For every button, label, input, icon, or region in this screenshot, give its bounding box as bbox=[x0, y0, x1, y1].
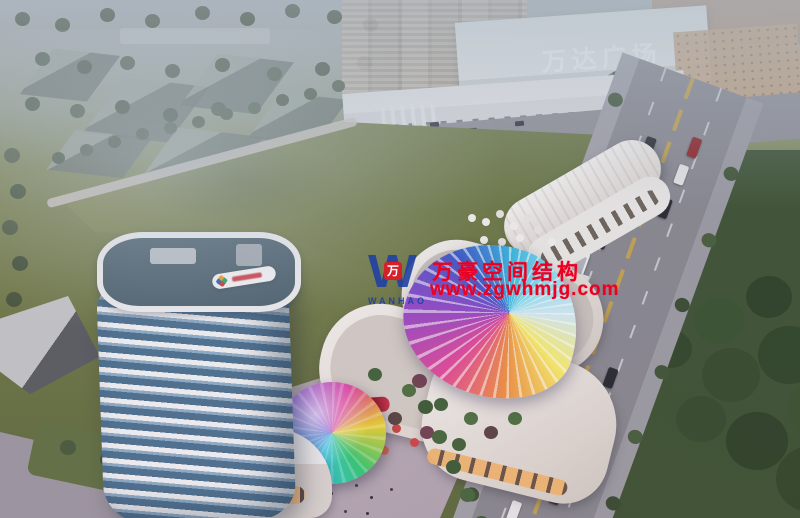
background-building-block bbox=[20, 48, 120, 101]
background-roof bbox=[120, 28, 270, 44]
watermark: W 万 WANHAO 万豪空间结构 www.zgwhmjg.com bbox=[368, 252, 588, 312]
watermark-url-text: www.zgwhmjg.com bbox=[430, 279, 620, 301]
watermark-logo-badge: 万 bbox=[384, 262, 402, 280]
rooftop-equipment bbox=[236, 244, 262, 266]
aerial-rendering: 万达广场 bbox=[0, 0, 800, 518]
street-trees bbox=[418, 400, 433, 414]
warehouse-building bbox=[0, 296, 100, 422]
rooftop-equipment bbox=[150, 248, 196, 264]
watermark-logo-caption: WANHAO bbox=[368, 296, 427, 306]
car bbox=[515, 121, 524, 127]
terrace-trees bbox=[368, 368, 382, 381]
tree-cluster bbox=[4, 148, 20, 163]
tower-logo-icon bbox=[215, 275, 228, 288]
tree-cluster bbox=[15, 12, 30, 26]
tower-logo-text-mark bbox=[232, 272, 262, 282]
umbrella-group-white bbox=[468, 214, 476, 222]
tree-row bbox=[52, 152, 65, 164]
tree-row bbox=[60, 440, 76, 455]
